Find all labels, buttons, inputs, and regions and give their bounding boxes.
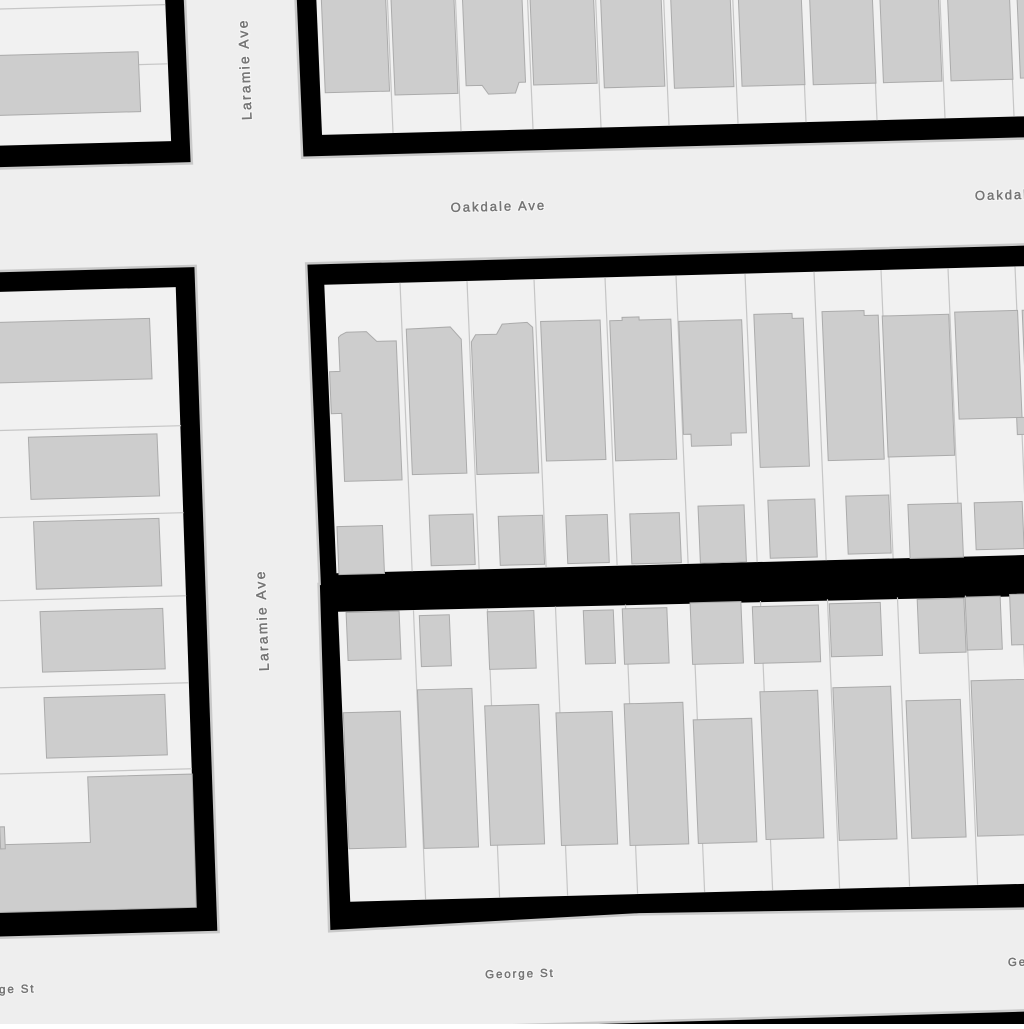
svg-text:Oakdale Ave: Oakdale Ave (450, 198, 546, 215)
svg-text:George St: George St (0, 983, 36, 997)
svg-text:Oakdale Ave: Oakdale Ave (975, 186, 1024, 203)
svg-text:George St: George St (485, 968, 555, 982)
svg-text:George St: George St (1008, 955, 1024, 969)
